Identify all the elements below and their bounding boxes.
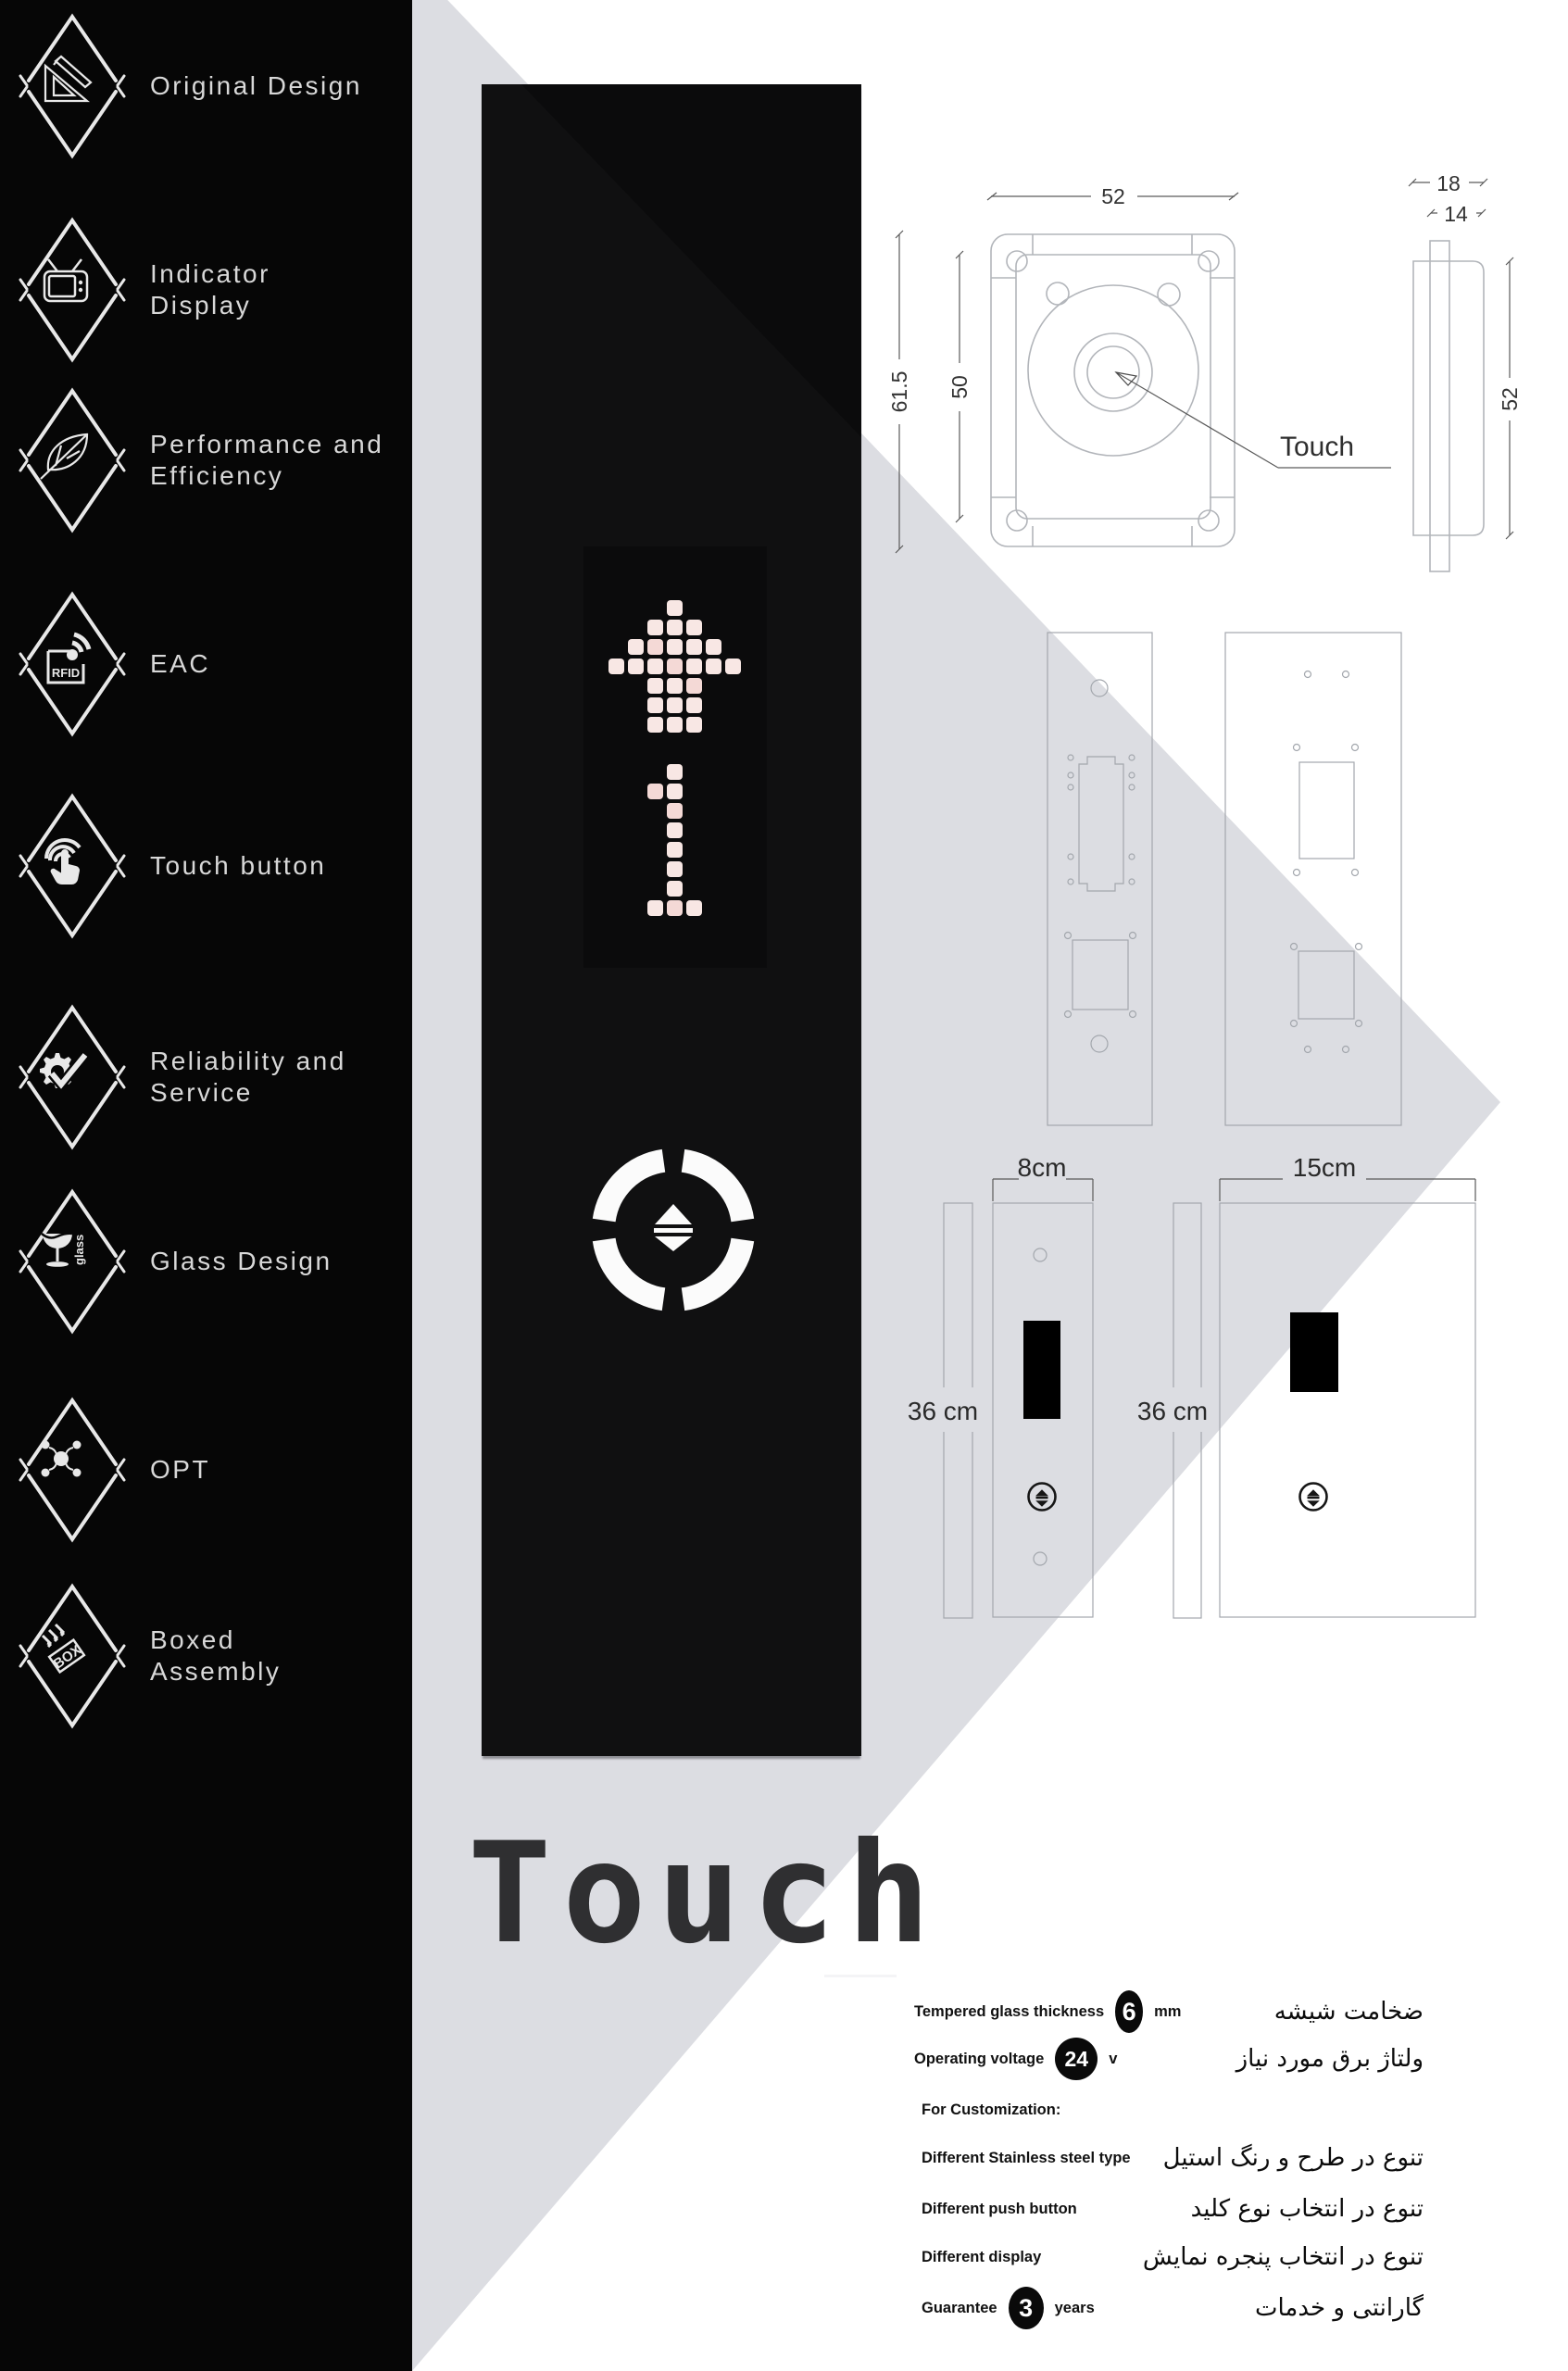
- box-icon: BOX: [17, 1579, 128, 1733]
- led-pixel: [667, 620, 683, 635]
- wine-glass-icon: glass: [17, 1185, 128, 1338]
- led-pixel: [667, 717, 683, 733]
- network-icon: [17, 1393, 128, 1547]
- panel-15cm: [1220, 1203, 1475, 1617]
- sidebar-item-original-design: Original Design: [17, 9, 406, 163]
- led-pixel: [667, 900, 683, 916]
- led-pixel: [628, 659, 644, 674]
- led-pixel: [647, 900, 663, 916]
- spec-label-en: Tempered glass thickness6mm: [884, 1990, 1181, 2033]
- led-pixel: [706, 659, 721, 674]
- sidebar-item-label: EAC: [150, 648, 210, 680]
- product-title: Touch: [468, 1813, 942, 1975]
- spec-label-fa: تنوع در طرح و رنگ استیل: [1163, 2144, 1424, 2172]
- side-view-drawing: 18 14 52: [1389, 139, 1568, 583]
- touch-button-mark: [1029, 1484, 1056, 1511]
- spec-value-badge: 3: [1009, 2287, 1044, 2329]
- led-pixel: [686, 620, 702, 635]
- sidebar-item-label: OPT: [150, 1454, 210, 1486]
- gear-check-icon: [17, 1000, 128, 1154]
- led-pixel: [667, 659, 683, 674]
- led-pixel: [667, 697, 683, 713]
- spec-label-en: Different Stainless steel type: [884, 2150, 1131, 2167]
- spec-row: Tempered glass thickness6mmضخامت شیشه: [884, 1989, 1440, 2034]
- sidebar-item-glass-design: glassGlass Design: [17, 1185, 406, 1338]
- led-pixel: [667, 678, 683, 694]
- ear-lug: [1047, 282, 1069, 305]
- led-pixel: [667, 600, 683, 616]
- dim-height-inner: 50: [947, 375, 972, 399]
- sidebar-item-label: BoxedAssembly: [150, 1625, 281, 1687]
- touch-callout: Touch: [1280, 432, 1354, 462]
- width-label-8cm: 8cm: [1018, 1153, 1067, 1182]
- led-pixel: [647, 678, 663, 694]
- panel-sizes-drawing: 8cm 36 cm 15cm 36 cm: [884, 1148, 1486, 1630]
- body-outline: [1413, 261, 1484, 535]
- up-down-arrows-icon: [654, 1204, 693, 1251]
- spec-label-fa: گارانتی و خدمات: [1255, 2294, 1424, 2322]
- dim-14: 14: [1444, 202, 1468, 226]
- tv-icon: [17, 213, 128, 367]
- led-pixel: [725, 659, 741, 674]
- ear-lug: [1158, 283, 1180, 306]
- spec-label-en: Different display: [884, 2249, 1041, 2266]
- svg-text:RFID: RFID: [52, 666, 80, 680]
- width-label-15cm: 15cm: [1293, 1153, 1356, 1182]
- spec-value-badge: 24: [1055, 2038, 1098, 2080]
- touch-button-mark: [1300, 1484, 1327, 1511]
- dim-52-side: 52: [1498, 387, 1522, 411]
- led-pixel: [667, 842, 683, 858]
- rfid-icon: RFID: [17, 587, 128, 741]
- mounting-hole: [1198, 251, 1219, 271]
- led-pixel: [706, 639, 721, 655]
- led-floor-number: [628, 764, 725, 920]
- spec-label-fa: تنوع در انتخاب پنجره نمایش: [1143, 2243, 1424, 2271]
- display-cutout: [1290, 1312, 1338, 1392]
- sidebar-item-indicator-display: IndicatorDisplay: [17, 213, 406, 367]
- led-pixel: [628, 639, 644, 655]
- display-cutout: [1023, 1321, 1060, 1419]
- spec-row: Operating voltage24vولتاژ برق مورد نیاز: [884, 2037, 1440, 2081]
- led-pixel: [686, 697, 702, 713]
- spec-row: Different displayتنوع در انتخاب پنجره نم…: [884, 2235, 1440, 2279]
- led-pixel: [686, 717, 702, 733]
- led-pixel: [647, 620, 663, 635]
- sidebar: Original Design IndicatorDisplay Perform…: [0, 0, 412, 2371]
- led-pixel: [667, 861, 683, 877]
- spec-unit: years: [1055, 2300, 1095, 2317]
- sidebar-item-label: Original Design: [150, 70, 362, 102]
- dim-height-outer: 61.5: [887, 371, 911, 413]
- spec-list: Tempered glass thickness6mmضخامت شیشهOpe…: [884, 1982, 1440, 2352]
- sidebar-item-eac: RFIDEAC: [17, 587, 406, 741]
- sidebar-item-opt: OPT: [17, 1393, 406, 1547]
- sidebar-item-performance-and-efficiency: Performance andEfficiency: [17, 383, 406, 537]
- dim-width: 52: [1101, 184, 1125, 208]
- spec-row: Different push buttonتنوع در انتخاب نوع …: [884, 2187, 1440, 2231]
- spec-row: Different Stainless steel typeتنوع در طر…: [884, 2136, 1440, 2180]
- led-pixel: [686, 678, 702, 694]
- led-pixel: [647, 659, 663, 674]
- leaf-icon: [17, 383, 128, 537]
- led-pixel: [647, 717, 663, 733]
- spec-value-badge: 6: [1115, 1990, 1143, 2033]
- divider-dash: [824, 1975, 897, 1977]
- sidebar-item-label: Performance andEfficiency: [150, 429, 383, 492]
- spec-unit: v: [1109, 2051, 1117, 2068]
- sidebar-item-label: IndicatorDisplay: [150, 258, 270, 321]
- sidebar-item-label: Glass Design: [150, 1246, 332, 1277]
- led-pixel: [686, 900, 702, 916]
- spec-label-fa: ولتاژ برق مورد نیاز: [1236, 2045, 1424, 2073]
- touch-button-icon: [590, 1147, 757, 1313]
- spec-label-en: Guarantee3years: [884, 2287, 1095, 2329]
- led-pixel: [686, 659, 702, 674]
- dim-18: 18: [1436, 171, 1461, 195]
- spec-row: For Customization:: [884, 2088, 1440, 2132]
- poster: Original Design IndicatorDisplay Perform…: [0, 0, 1568, 2371]
- led-pixel: [667, 803, 683, 819]
- led-pixel: [686, 639, 702, 655]
- led-pixel: [647, 697, 663, 713]
- spec-row: Guarantee3yearsگارانتی و خدمات: [884, 2286, 1440, 2330]
- sidebar-item-boxed-assembly: BOXBoxedAssembly: [17, 1579, 406, 1733]
- sidebar-item-touch-button: Touch button: [17, 789, 406, 943]
- front-view-drawing: 52 61.5 50 Touch: [871, 120, 1408, 602]
- product-panel: [482, 84, 861, 1756]
- led-display-window: [583, 546, 767, 968]
- ruler-pencil-icon: [17, 9, 128, 163]
- spec-label-fa: تنوع در انتخاب نوع کلید: [1191, 2195, 1424, 2223]
- back-plates-drawing: [1037, 621, 1408, 1139]
- led-pixel: [608, 659, 624, 674]
- spec-label-en: For Customization:: [884, 2101, 1060, 2119]
- sidebar-item-label: Reliability andService: [150, 1046, 346, 1109]
- led-pixel: [667, 764, 683, 780]
- led-pixel: [667, 639, 683, 655]
- svg-text:glass: glass: [72, 1235, 86, 1265]
- touch-hand-icon: [17, 789, 128, 943]
- led-pixel: [647, 784, 663, 799]
- spec-unit: mm: [1154, 2003, 1181, 2021]
- spec-label-en: Different push button: [884, 2201, 1077, 2218]
- led-pixel: [667, 784, 683, 799]
- led-pixel: [647, 639, 663, 655]
- led-pixel: [667, 881, 683, 897]
- spec-label-fa: ضخامت شیشه: [1274, 1998, 1424, 2026]
- height-label-left: 36 cm: [908, 1397, 978, 1425]
- led-up-arrow: [608, 600, 745, 736]
- spec-label-en: Operating voltage24v: [884, 2038, 1117, 2080]
- led-pixel: [667, 822, 683, 838]
- height-label-right: 36 cm: [1137, 1397, 1208, 1425]
- glass-layer: [1430, 241, 1449, 571]
- sidebar-item-label: Touch button: [150, 850, 326, 882]
- sidebar-item-reliability-and-service: Reliability andService: [17, 1000, 406, 1154]
